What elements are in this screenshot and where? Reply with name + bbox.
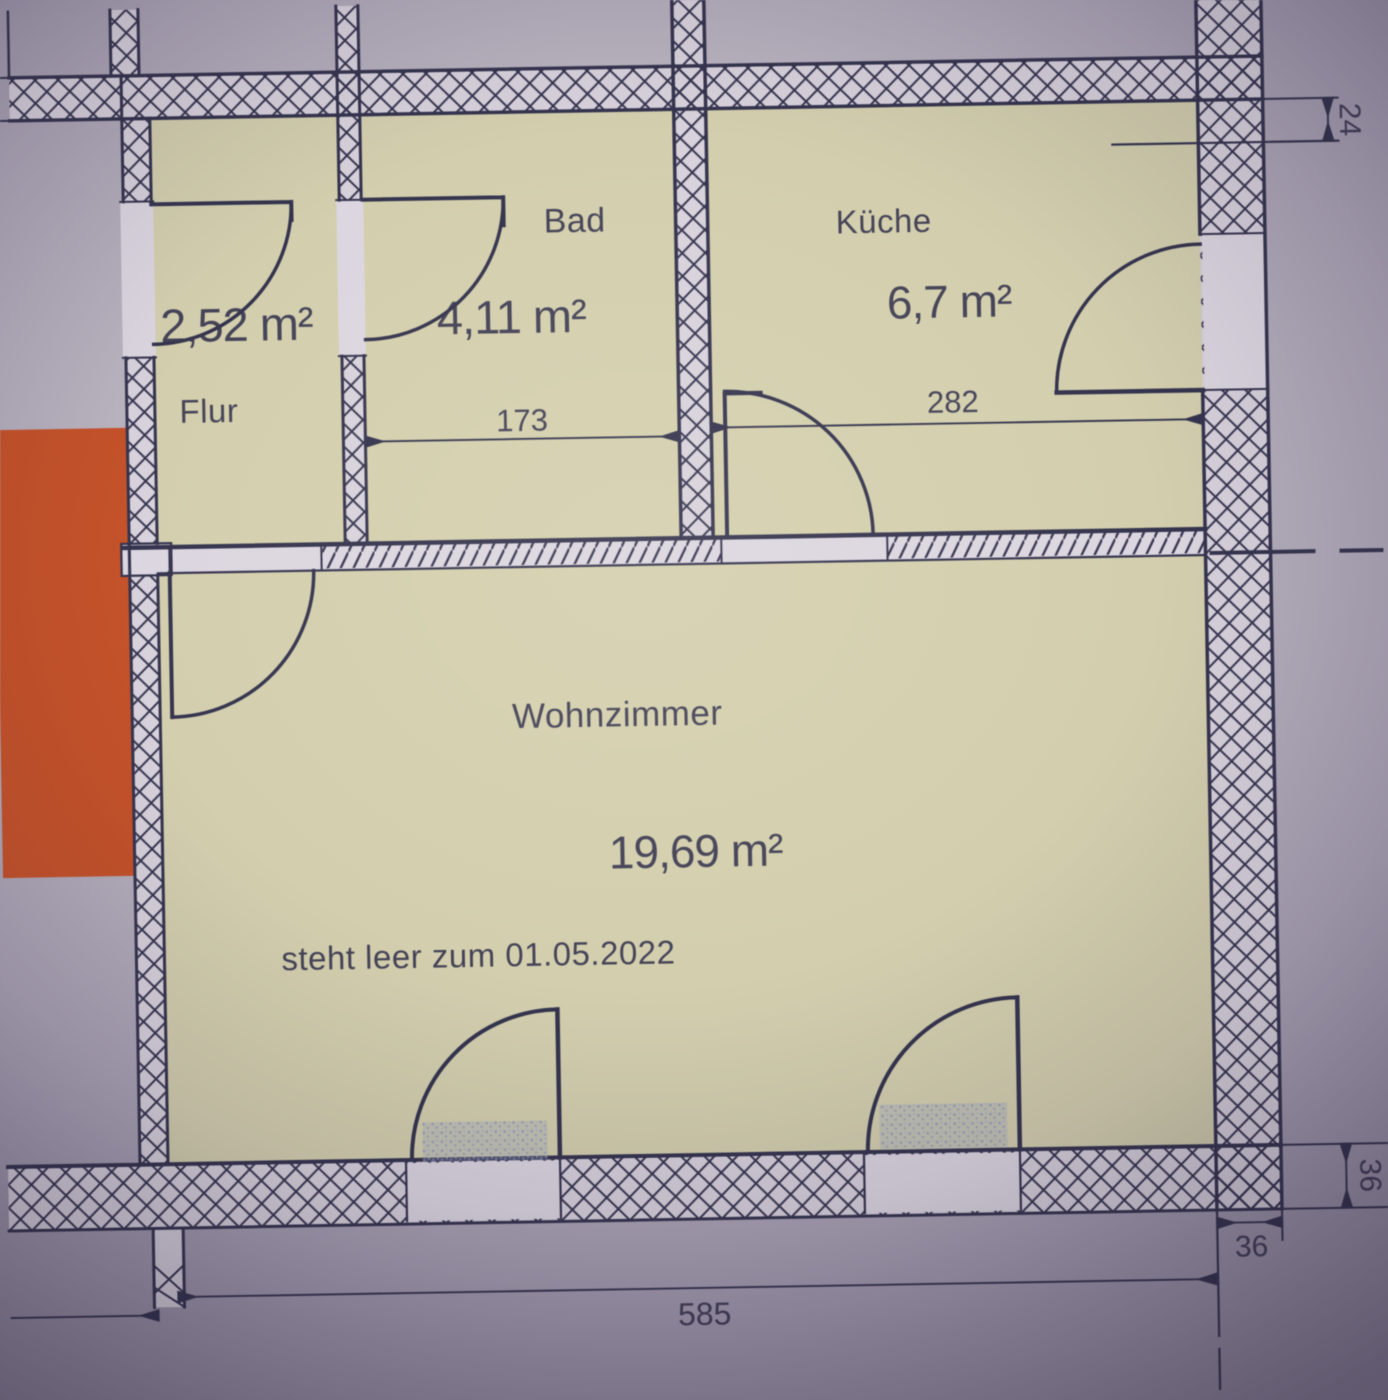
orange-building-block [0, 428, 141, 878]
threshold-door-a [422, 1121, 548, 1162]
dimension-text-282: 282 [927, 384, 979, 420]
opening-bottom-door-b [864, 1152, 1021, 1213]
dimension-line-24-top [1328, 98, 1329, 141]
room-area-kueche: 6,7 m² [886, 274, 1012, 328]
room-label-kueche: Küche [835, 202, 932, 241]
opening-kueche-wohnzimmer-door [721, 537, 887, 563]
opening-wohnzimmer-door [169, 546, 321, 572]
dimension-line-36-bottom [1217, 1222, 1282, 1223]
dimension-line-585 [178, 1279, 1216, 1297]
room-label-bad: Bad [543, 201, 606, 240]
dimension-text-585: 585 [678, 1295, 732, 1332]
plan-content: 2,52 m² Flur Bad 4,11 m² 173 Küche 6,7 m… [0, 0, 1388, 1400]
dimension-line-left-continuation [11, 1315, 159, 1318]
dimension-line-36-right [1346, 1144, 1347, 1208]
threshold-door-b [879, 1103, 1008, 1150]
opening-flur-door [120, 201, 156, 358]
dimension-text-36-right: 36 [1353, 1158, 1387, 1192]
opening-bottom-door-a [406, 1160, 561, 1221]
floorplan-photo: 2,52 m² Flur Bad 4,11 m² 173 Küche 6,7 m… [0, 0, 1388, 1400]
vacancy-note: steht leer zum 01.05.2022 [281, 933, 676, 977]
dimension-text-36-bottom: 36 [1235, 1230, 1269, 1264]
dimension-text-24-top: 24 [1333, 102, 1367, 136]
floorplan-svg: 2,52 m² Flur Bad 4,11 m² 173 Küche 6,7 m… [0, 0, 1388, 1400]
dimension-text-173: 173 [496, 403, 548, 439]
room-area-flur: 2,52 m² [160, 297, 314, 353]
room-label-flur: Flur [179, 392, 238, 430]
room-area-bad: 4,11 m² [436, 289, 586, 345]
room-area-wohnzimmer: 19,69 m² [608, 823, 783, 878]
opening-bad-door [336, 200, 366, 356]
opening-kueche-door [1202, 233, 1267, 390]
room-label-wohnzimmer: Wohnzimmer [512, 694, 723, 737]
